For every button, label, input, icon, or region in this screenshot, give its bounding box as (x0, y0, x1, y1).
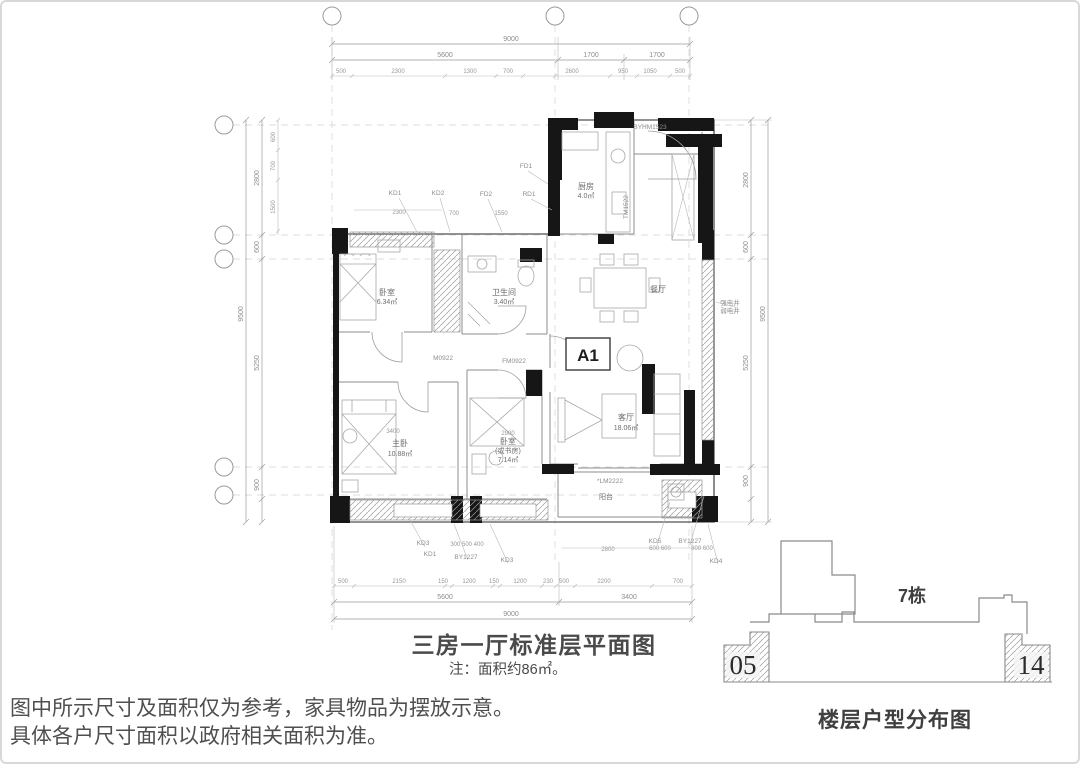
dim-left-minor: 600 (271, 131, 277, 142)
dim-bottom-major: 5600 (437, 594, 453, 601)
dim-bottom-total: 9000 (503, 611, 519, 618)
dim-top-minor: 500 (675, 69, 686, 75)
axis-grid (215, 7, 770, 630)
dimension-left: 600 700 1500 2800 600 5250 900 9500 (238, 117, 280, 525)
room-master-name: 主卧 (392, 438, 408, 448)
code-fd1: FD1 (520, 163, 533, 170)
key-plan: 05 14 7栋 楼层户型分布图 (724, 541, 1052, 732)
furniture-wardrobe (434, 250, 460, 332)
key-plan-unit-right: 14 (1018, 650, 1046, 680)
code-shaft-strong: 强电井 (720, 298, 740, 307)
axis-bubble (215, 486, 233, 504)
dim-interior: 2900 (501, 431, 515, 437)
code-rd1: RD1 (522, 191, 535, 198)
dim-top-major: 1700 (649, 52, 665, 59)
disclaimer: 图中所示尺寸及面积仅为参考，家具物品为摆放示意。 具体各户尺寸面积以政府相关面积… (10, 697, 514, 748)
dim-top-minor: 1300 (463, 69, 477, 75)
axis-bubble (680, 7, 698, 25)
code-m0922: M0922 (433, 355, 453, 362)
dim-bottom-minor: 2150 (392, 579, 406, 585)
dim-right-total: 9500 (760, 306, 767, 322)
dim-left-minor: 1500 (271, 200, 277, 214)
dim-interior: 300 500 400 (450, 542, 484, 548)
axis-bubble (215, 250, 233, 268)
room-balcony-name: 阳台 (599, 492, 613, 501)
dim-interior: 800 600 (691, 546, 713, 552)
code-fd2: FD2 (480, 191, 493, 198)
axis-bubble (215, 116, 233, 134)
room-kitchen-area: 4.0㎡ (578, 192, 595, 200)
code-entry-door: BYHM1523 (633, 124, 667, 131)
furniture-kitchen (562, 132, 630, 232)
dim-left-total: 9500 (238, 306, 245, 322)
dim-bottom-minor: 1200 (513, 579, 527, 585)
disclaimer-line2: 具体各户尺寸面积以政府相关面积为准。 (10, 725, 388, 748)
dim-right-major: 600 (743, 241, 750, 253)
plan-caption: 三房一厅标准层平面图 注：面积约86㎡。 (412, 632, 657, 678)
unit-badge: A1 (566, 338, 610, 370)
dim-left-minor: 700 (271, 160, 277, 171)
dim-right-major: 5250 (743, 355, 750, 371)
code-by1227a: BY1227 (454, 554, 478, 561)
furniture-master (342, 400, 396, 492)
dim-bottom-minor: 150 (438, 579, 449, 585)
code-kd3a: KD3 (417, 540, 430, 547)
unit-badge-label: A1 (577, 346, 599, 365)
dim-top-minor: 2600 (565, 69, 579, 75)
floor-plan-page: 9000 5600 1700 1700 500 2300 1300 700 26… (0, 0, 1080, 764)
walls (330, 112, 722, 523)
dim-left-major: 900 (254, 479, 261, 491)
room-living-area: 18.06㎡ (614, 424, 639, 432)
dim-interior: 600 600 (649, 546, 671, 552)
room-study-name: 卧室 (500, 436, 516, 446)
furniture-bedroom2 (340, 240, 400, 320)
dim-left-major: 600 (254, 241, 261, 253)
code-lm2222: *LM2222 (597, 478, 623, 485)
dim-right-major: 900 (743, 475, 750, 487)
dim-bottom-minor: 500 (559, 579, 570, 585)
dim-bottom-major: 3400 (621, 594, 637, 601)
dim-left-major: 5250 (254, 355, 261, 371)
dim-bottom-minor: 2200 (597, 579, 611, 585)
room-bath-area: 3.40㎡ (494, 298, 515, 306)
dim-bottom-minor: 230 (543, 579, 554, 585)
unit-outline (334, 120, 714, 522)
dim-interior: 1550 (494, 211, 508, 217)
key-plan-caption: 楼层户型分布图 (818, 708, 972, 732)
room-bath-name: 卫生间 (492, 287, 516, 297)
dimension-top: 9000 5600 1700 1700 500 2300 1300 700 26… (329, 36, 693, 80)
floor-plan-svg: 9000 5600 1700 1700 500 2300 1300 700 26… (2, 2, 1080, 764)
code-kd4: KD4 (710, 558, 723, 565)
dim-top-minor: 1050 (643, 69, 657, 75)
room-bedroom2-name: 卧室 (379, 287, 395, 297)
code-kd1: KD1 (389, 190, 402, 197)
code-kd2: KD2 (432, 190, 445, 197)
disclaimer-line1: 图中所示尺寸及面积仅为参考，家具物品为摆放示意。 (10, 697, 514, 720)
dim-top-major: 5600 (437, 52, 453, 59)
code-kd3b: KD3 (501, 557, 514, 564)
room-master-area: 10.88㎡ (388, 450, 413, 458)
code-shaft-weak: 弱电井 (720, 306, 740, 315)
dim-bottom-minor: 1200 (462, 579, 476, 585)
room-bedroom2-area: 6.34㎡ (377, 298, 398, 306)
dim-top-minor: 2300 (391, 69, 405, 75)
axis-bubble (323, 7, 341, 25)
room-living-name: 客厅 (618, 412, 634, 422)
furniture-dining (580, 254, 660, 322)
dim-bottom-minor: 150 (489, 579, 500, 585)
dim-interior: 3400 (386, 429, 400, 435)
dim-right-major: 2800 (743, 172, 750, 188)
code-kd1b: KD1 (424, 551, 437, 558)
plan-note: 注：面积约86㎡。 (449, 661, 567, 678)
dim-bottom-minor: 700 (673, 579, 684, 585)
dim-interior: 2300 (392, 210, 406, 216)
axis-bubble (215, 226, 233, 244)
room-kitchen-name: 厨房 (578, 181, 594, 191)
dim-top-minor: 950 (618, 69, 629, 75)
dim-top-major: 1700 (583, 52, 599, 59)
axis-bubble (215, 458, 233, 476)
code-kd5: KD5 (649, 538, 662, 545)
room-labels: 卧室 6.34㎡ 卫生间 3.40㎡ 厨房 4.0㎡ 餐厅 客厅 18.06㎡ … (377, 181, 666, 501)
room-study-area: 7.14㎡ (498, 456, 519, 464)
key-plan-building-label: 7栋 (898, 585, 926, 606)
dim-top-minor: 500 (336, 69, 347, 75)
room-dining-name: 餐厅 (650, 285, 666, 294)
key-plan-unit-left: 05 (730, 650, 757, 680)
dim-left-major: 2800 (254, 170, 261, 186)
dimension-bottom: 500 2150 150 1200 150 1200 230 500 2200 … (331, 526, 695, 623)
room-study-alt: (或书房) (495, 446, 521, 455)
dimension-right: 2800 600 5250 900 9500 (714, 117, 772, 525)
code-tm1522: TM1522 (623, 195, 630, 219)
dim-interior: 700 (449, 211, 460, 217)
code-by1227b: BY1227 (678, 538, 702, 545)
dim-top-minor: 700 (503, 69, 514, 75)
dim-top-total: 9000 (503, 36, 519, 43)
dim-bottom-minor: 500 (338, 579, 349, 585)
plan-title: 三房一厅标准层平面图 (412, 632, 657, 658)
axis-bubble (546, 7, 564, 25)
code-fm0922: FM0922 (502, 358, 526, 365)
